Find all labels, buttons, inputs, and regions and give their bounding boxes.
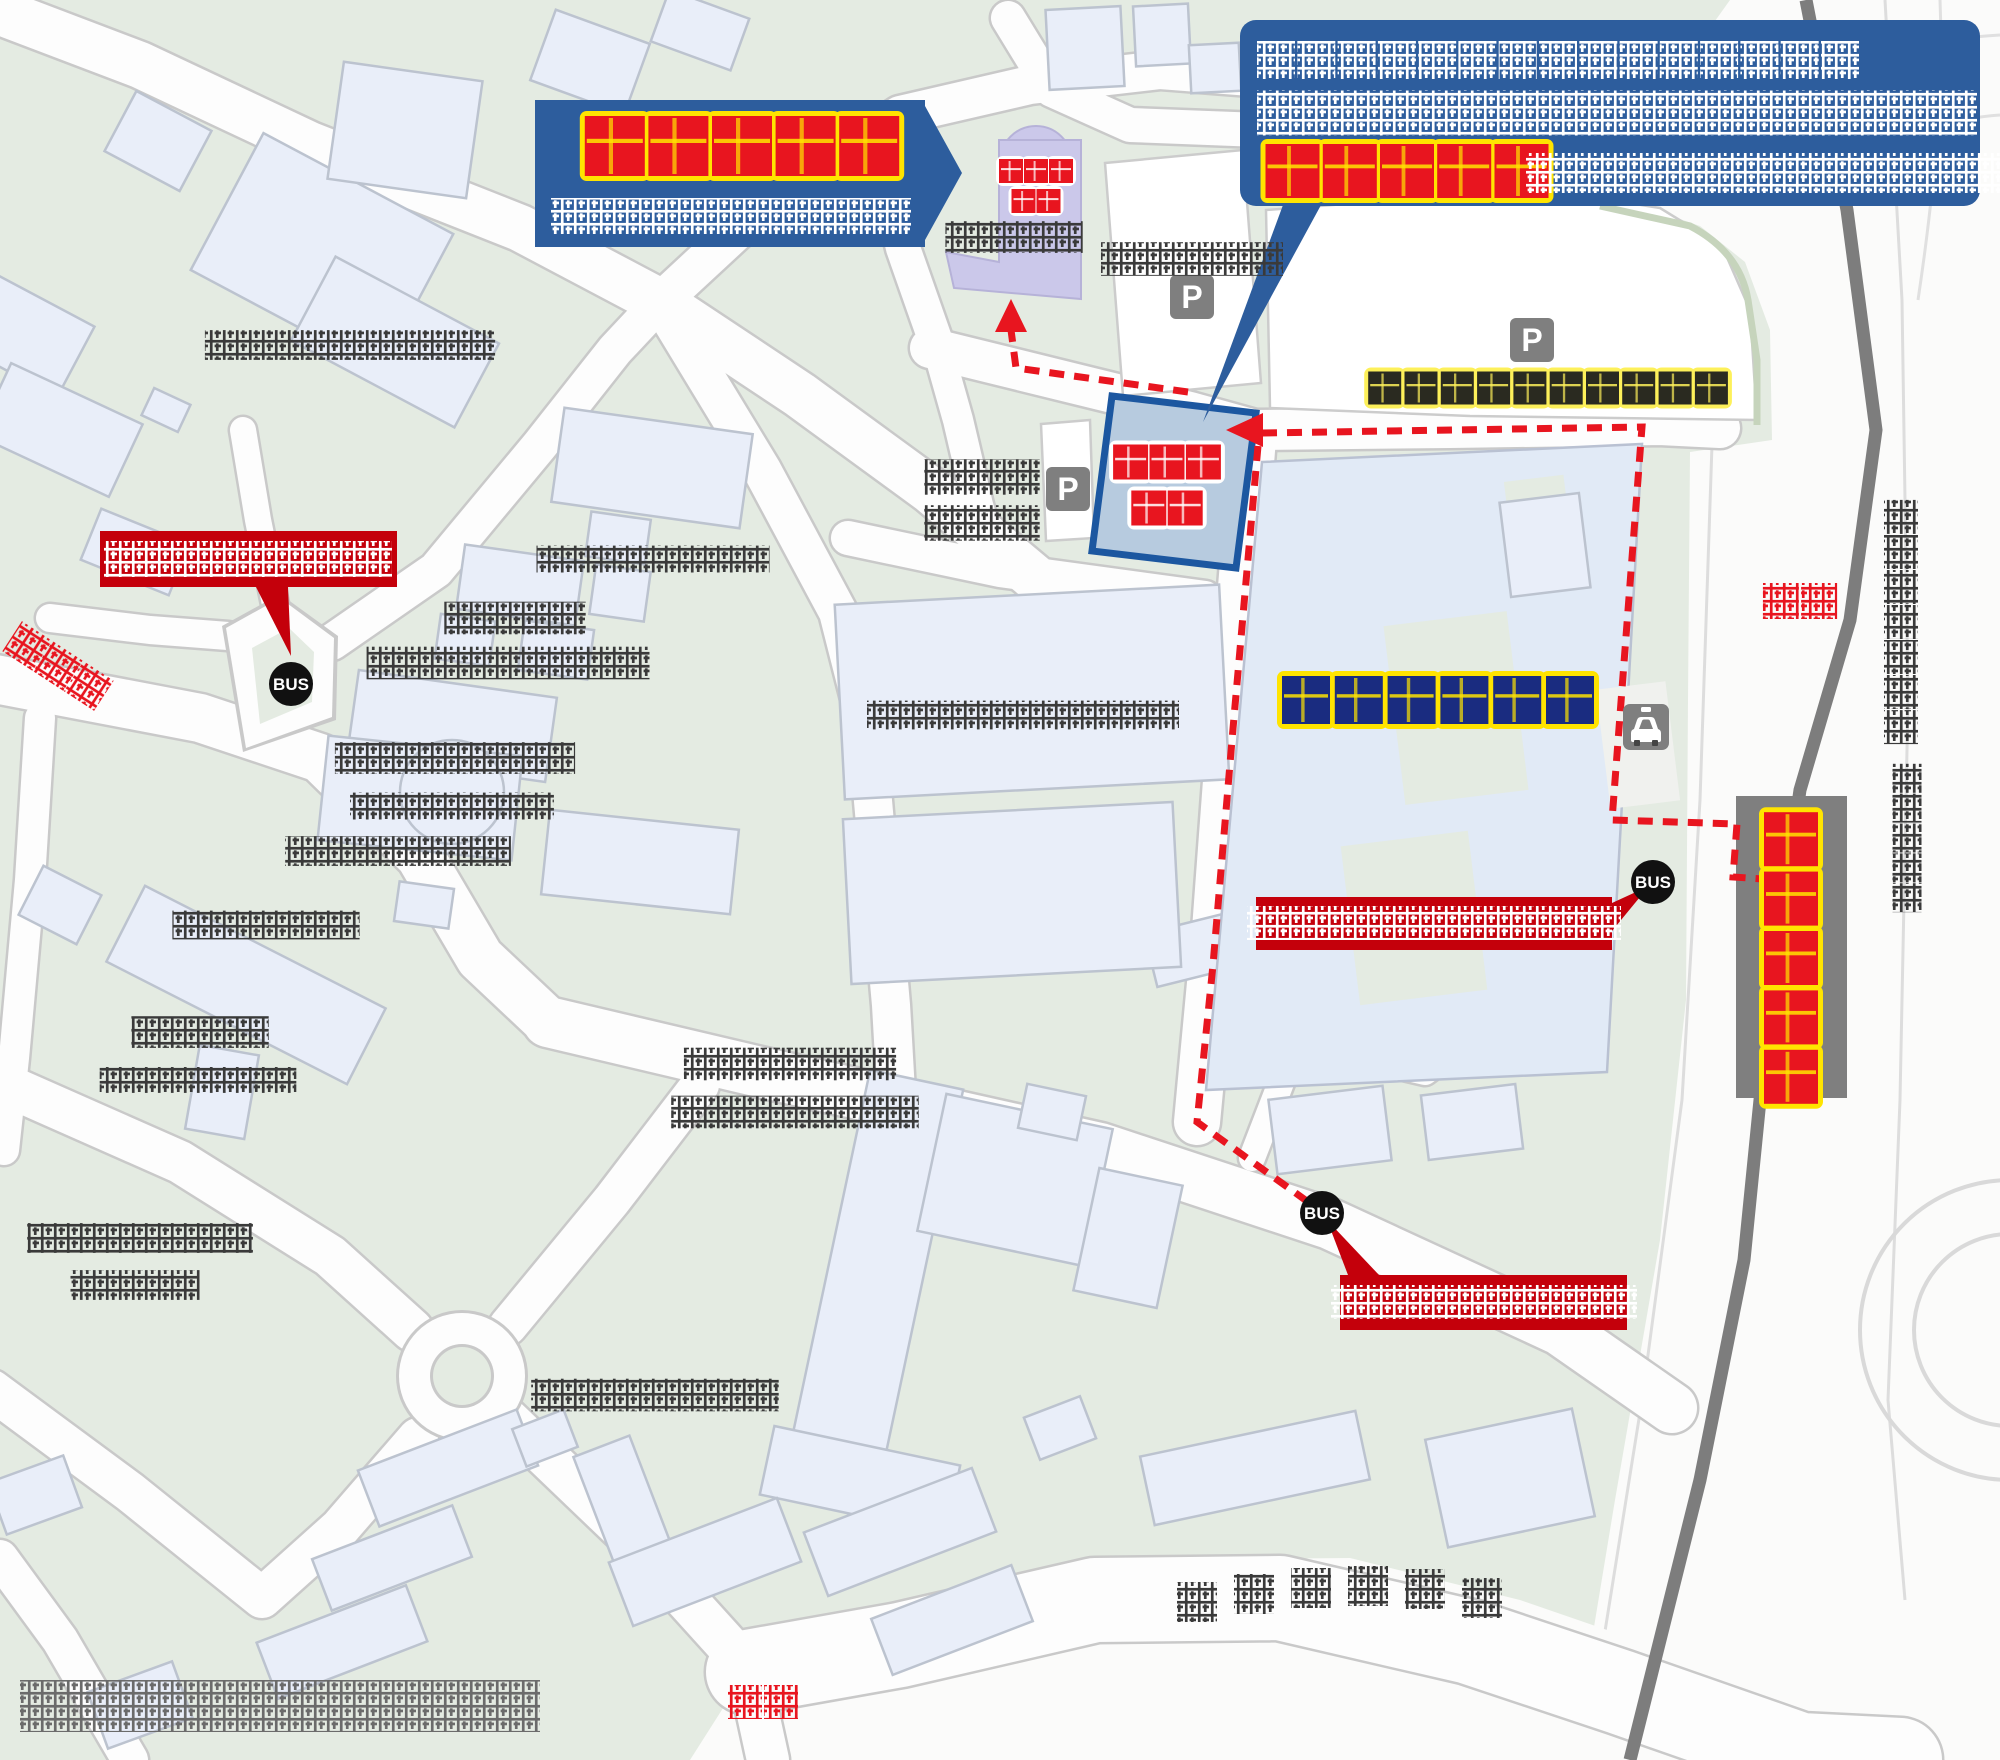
svg-text:P: P <box>1057 471 1078 507</box>
svg-text:BUS: BUS <box>273 675 309 694</box>
svg-text:BUS: BUS <box>1635 873 1671 892</box>
svg-text:P: P <box>1181 279 1202 315</box>
svg-text:BUS: BUS <box>1304 1204 1340 1223</box>
svg-text:P: P <box>1521 322 1542 358</box>
